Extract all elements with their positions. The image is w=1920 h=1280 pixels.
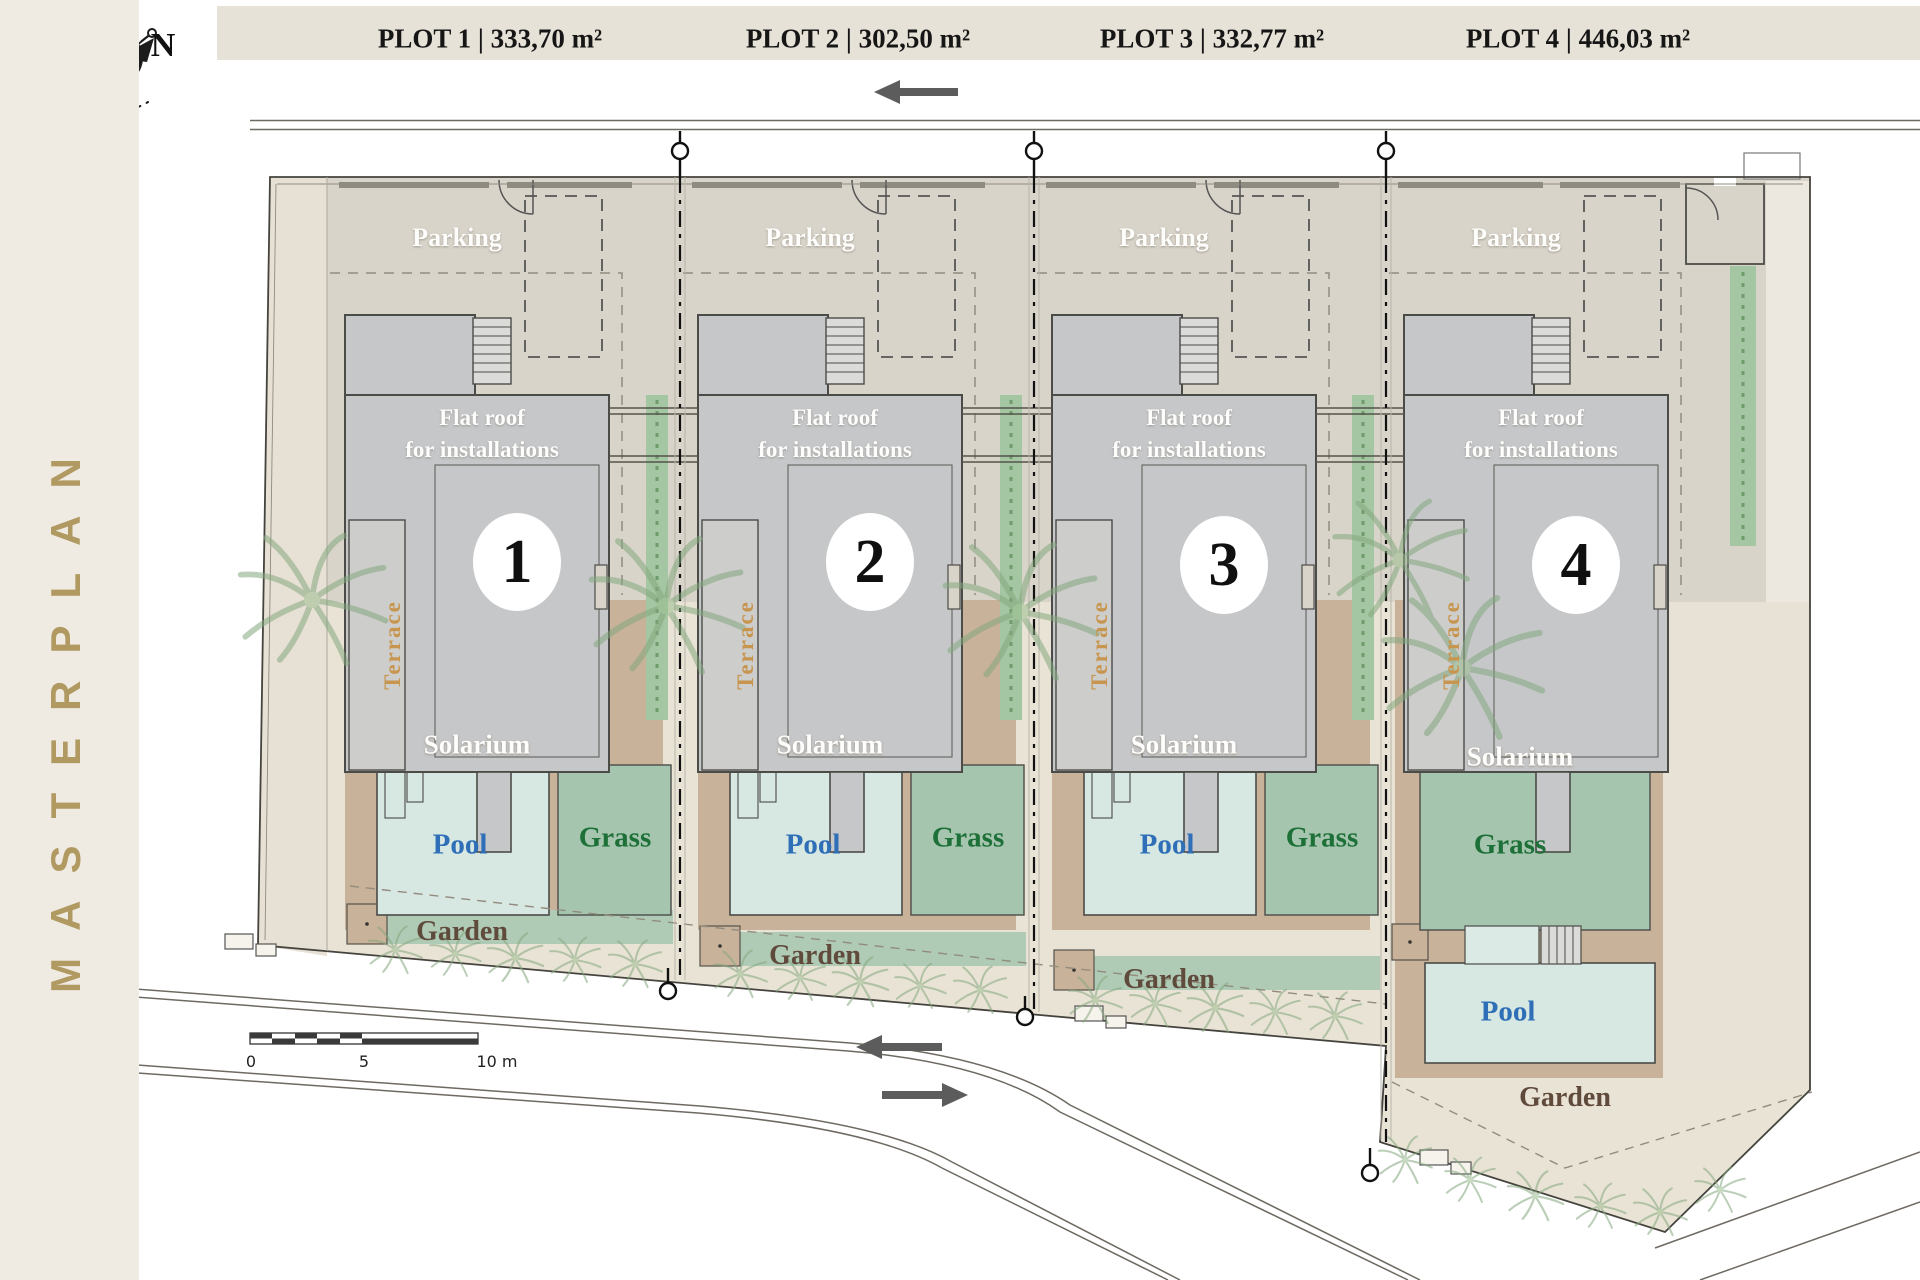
compass-north-label: N [151, 27, 176, 65]
site-plan-drawing [0, 0, 1920, 1280]
page-title: MASTERPLAN [42, 431, 90, 993]
plot4-parking-label: Parking [1471, 223, 1561, 253]
plot3-pool-label: Pool [1140, 829, 1195, 862]
plot2-number-badge: 2 [826, 513, 914, 611]
plot1-parking-label: Parking [412, 223, 502, 253]
plot3-parking-label: Parking [1119, 223, 1209, 253]
plot2-grass-label: Grass [932, 822, 1005, 855]
plot4-header-label: PLOT 4 | 446,03 m² [1466, 24, 1690, 55]
plot2-pool-label: Pool [786, 829, 841, 862]
plot3-garden-label: Garden [1123, 964, 1215, 996]
scale-bar [250, 1033, 478, 1044]
plot1-header-label: PLOT 1 | 333,70 m² [378, 24, 602, 55]
plot3-flatroof-line1: Flat roof [1146, 405, 1232, 431]
plot2-solarium-label: Solarium [777, 730, 884, 761]
plot4-flatroof-line1: Flat roof [1498, 405, 1584, 431]
plot4-terrace-label: Terrace [1439, 600, 1465, 690]
header-strip: PLOT 1 | 333,70 m² PLOT 2 | 302,50 m² PL… [217, 6, 1920, 60]
plot3-flatroof-line2: for installations [1112, 437, 1266, 463]
plot1-pool-label: Pool [433, 829, 488, 862]
plot1-solarium-label: Solarium [424, 730, 531, 761]
plot1-terrace-label: Terrace [380, 600, 406, 690]
plot4-garden-label: Garden [1519, 1082, 1611, 1114]
plot4-grass-label: Grass [1474, 829, 1547, 862]
plot1-grass-label: Grass [579, 822, 652, 855]
plot1-flatroof-line2: for installations [405, 437, 559, 463]
scale-tick-0: 0 [246, 1052, 256, 1071]
plot4-number-badge: 4 [1532, 516, 1620, 614]
plot4-solarium-label: Solarium [1467, 742, 1574, 773]
plot2-flatroof-line2: for installations [758, 437, 912, 463]
plot1-flatroof-line1: Flat roof [439, 405, 525, 431]
plot2-flatroof-line1: Flat roof [792, 405, 878, 431]
sidebar: MASTERPLAN [0, 0, 139, 1280]
plot4-pool-label: Pool [1481, 996, 1536, 1029]
plot3-number-badge: 3 [1180, 516, 1268, 614]
plot4-flatroof-line2: for installations [1464, 437, 1618, 463]
plot2-garden-label: Garden [769, 940, 861, 972]
plot3-header-label: PLOT 3 | 332,77 m² [1100, 24, 1324, 55]
masterplan-page: MASTERPLAN N PLOT 1 | 333,70 m² PLOT 2 |… [0, 0, 1920, 1280]
plot2-parking-label: Parking [765, 223, 855, 253]
plot1-number-badge: 1 [473, 513, 561, 611]
plot3-terrace-label: Terrace [1087, 600, 1113, 690]
plot3-solarium-label: Solarium [1131, 730, 1238, 761]
plot2-terrace-label: Terrace [733, 600, 759, 690]
plot1-garden-label: Garden [416, 916, 508, 948]
plot2-header-label: PLOT 2 | 302,50 m² [746, 24, 970, 55]
scale-tick-10: 10 m [476, 1052, 517, 1071]
plot3-grass-label: Grass [1286, 822, 1359, 855]
scale-tick-5: 5 [359, 1052, 369, 1071]
